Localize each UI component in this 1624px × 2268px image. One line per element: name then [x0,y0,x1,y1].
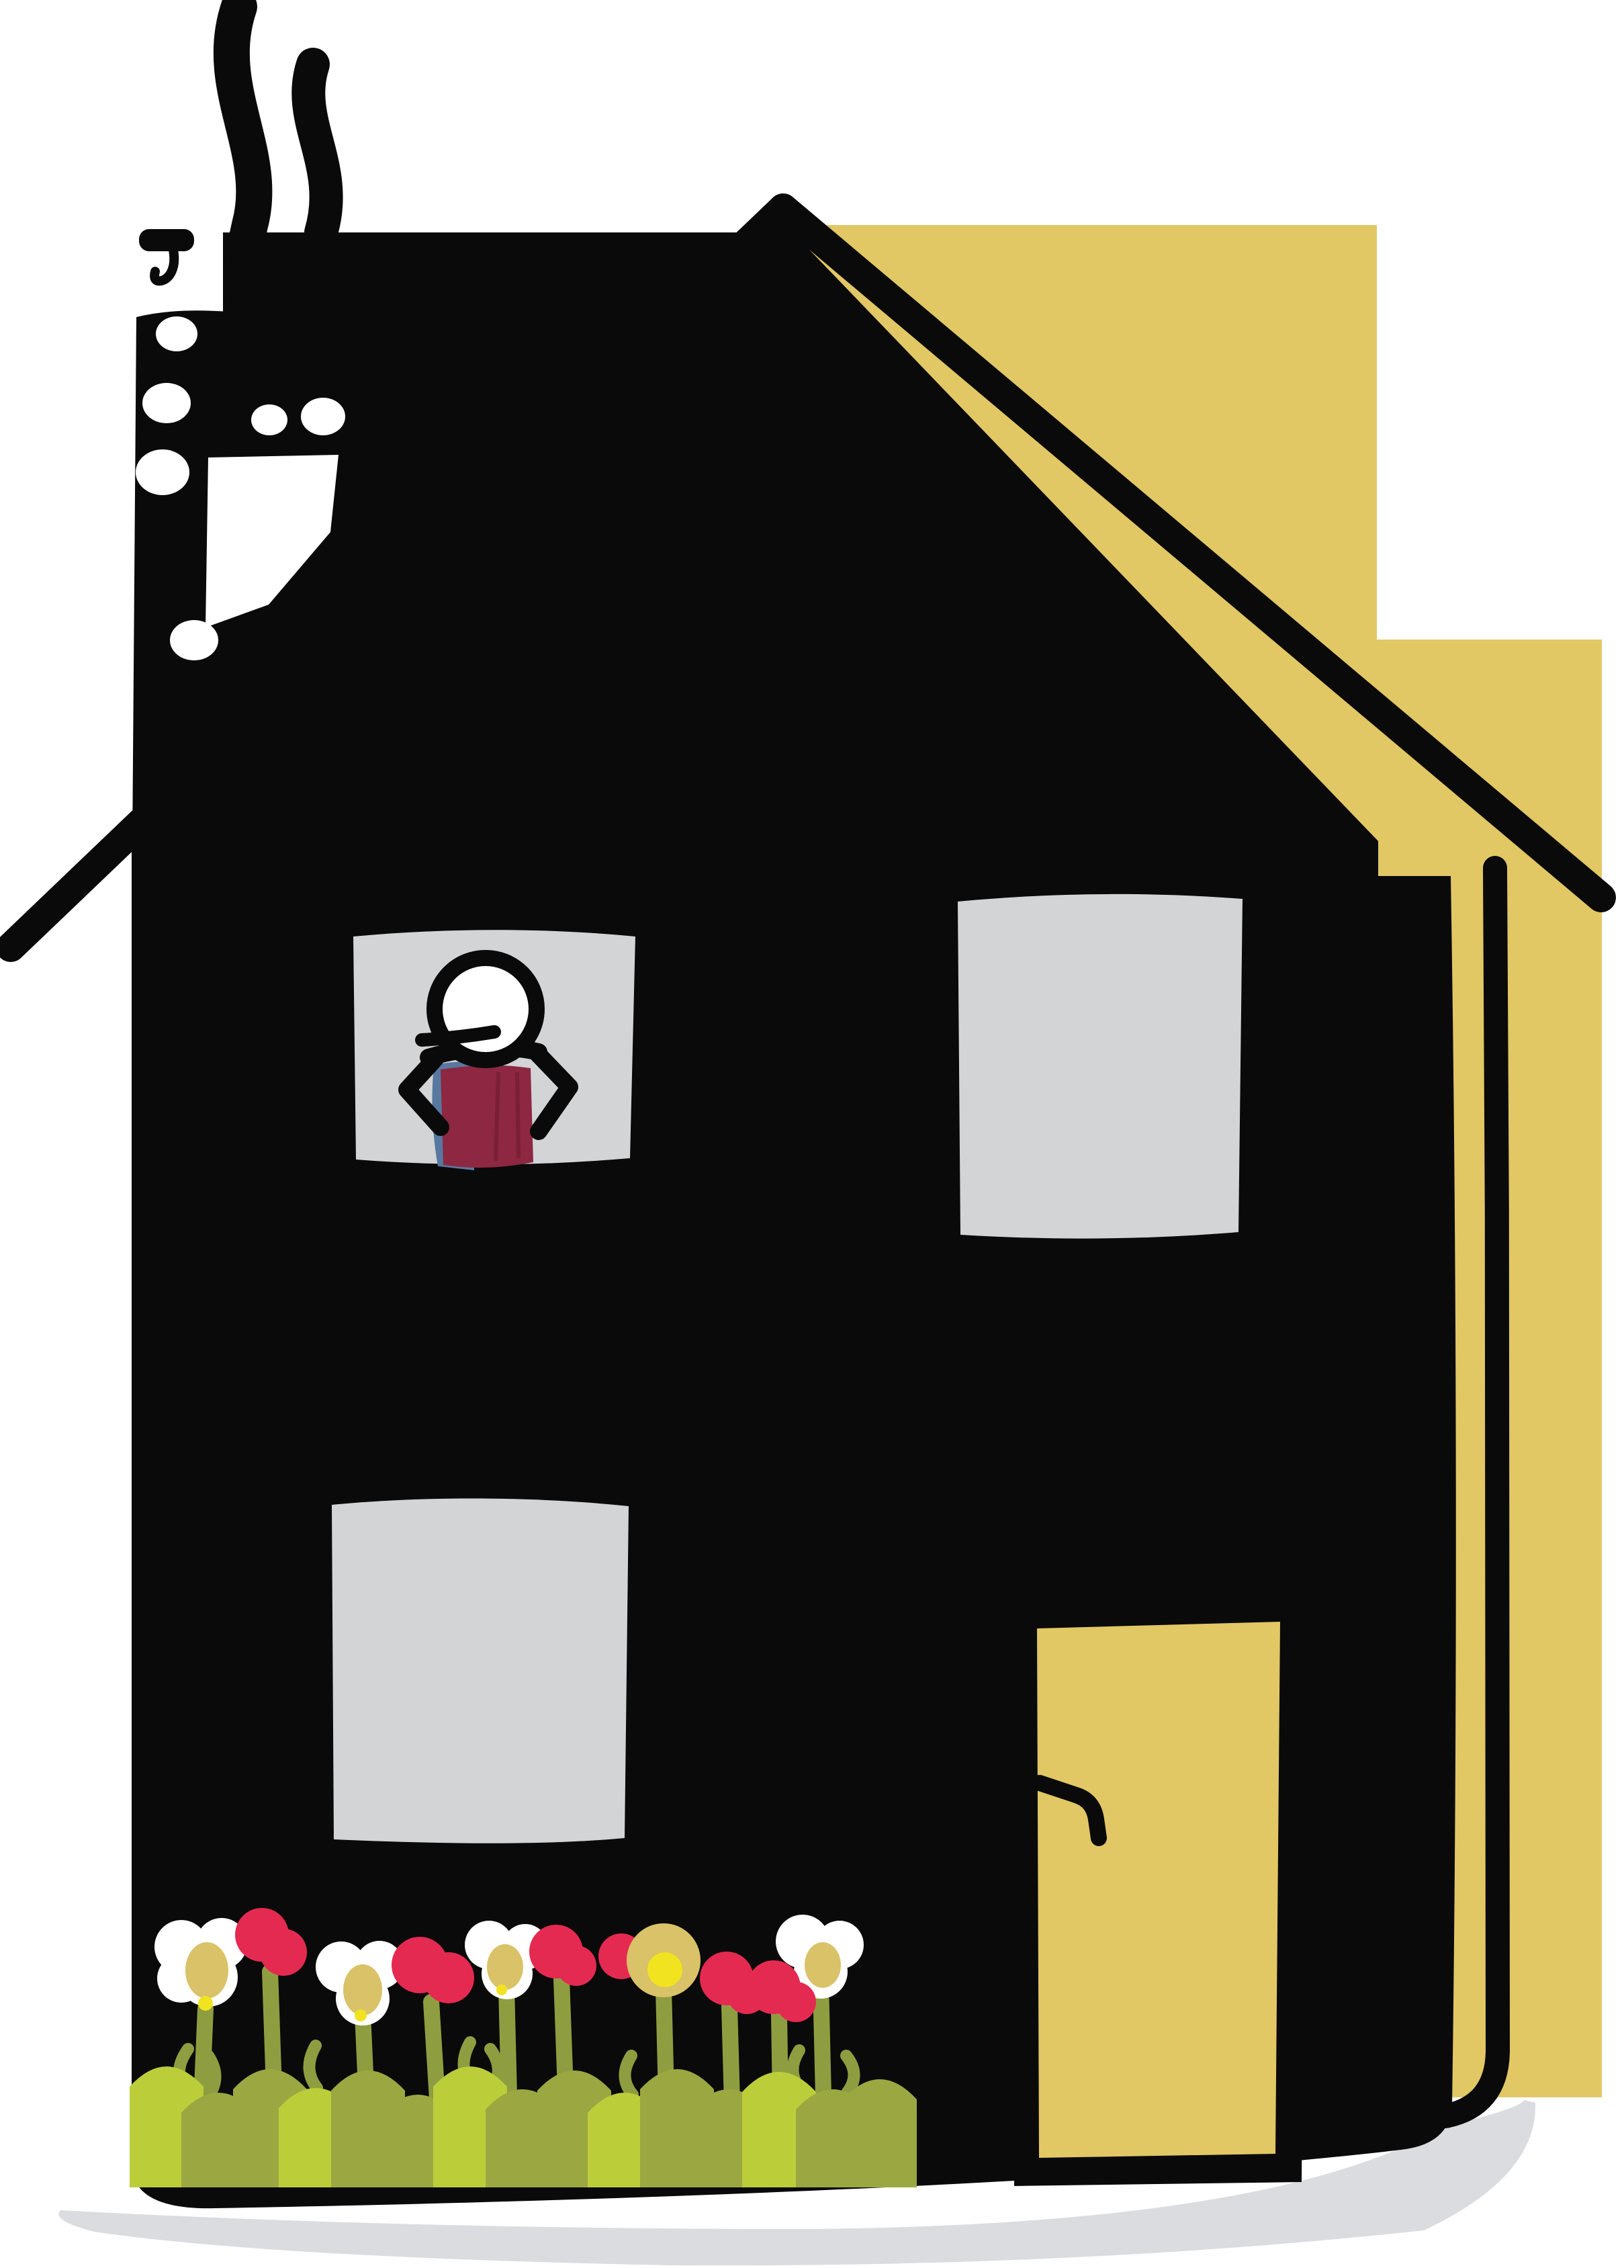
figure-head [435,958,537,1060]
door-panel [1037,1622,1280,2158]
crimson-bloom [260,1929,307,1976]
smoke-bar-doodle [139,229,194,251]
chimney-hole [136,449,189,495]
daisy-center [487,1944,523,1990]
gold-bloom-center [647,1952,682,1987]
chimney-hole [142,383,191,423]
smoke-trail-right [308,64,326,232]
gold-flower [627,1923,701,1997]
front-door [1014,1603,1306,2186]
crimson-bloom [776,1982,816,2022]
daisy-center-dot [198,1996,213,2011]
daisy-center-dot [355,2009,367,2021]
crimson-bloom [423,1952,474,2003]
chimney-hole [156,316,197,351]
daisy-center [185,1942,228,1999]
chimney-hole [301,398,345,435]
window-lower-left [332,1498,629,1843]
daisy-center-dot [496,1984,507,1995]
window-upper-right [958,894,1243,1239]
house-illustration [0,0,1624,2268]
crimson-bloom [556,1946,596,1986]
chimney-hole [251,404,287,435]
hedge-lobe [843,2079,917,2187]
daisy-center [805,1942,841,1988]
illustration-page: A child-like drawing of a tall black two… [0,0,1624,2268]
chimney-hole [170,620,218,660]
daisy-center [343,1964,382,2015]
figure-face-line [422,1032,494,1040]
